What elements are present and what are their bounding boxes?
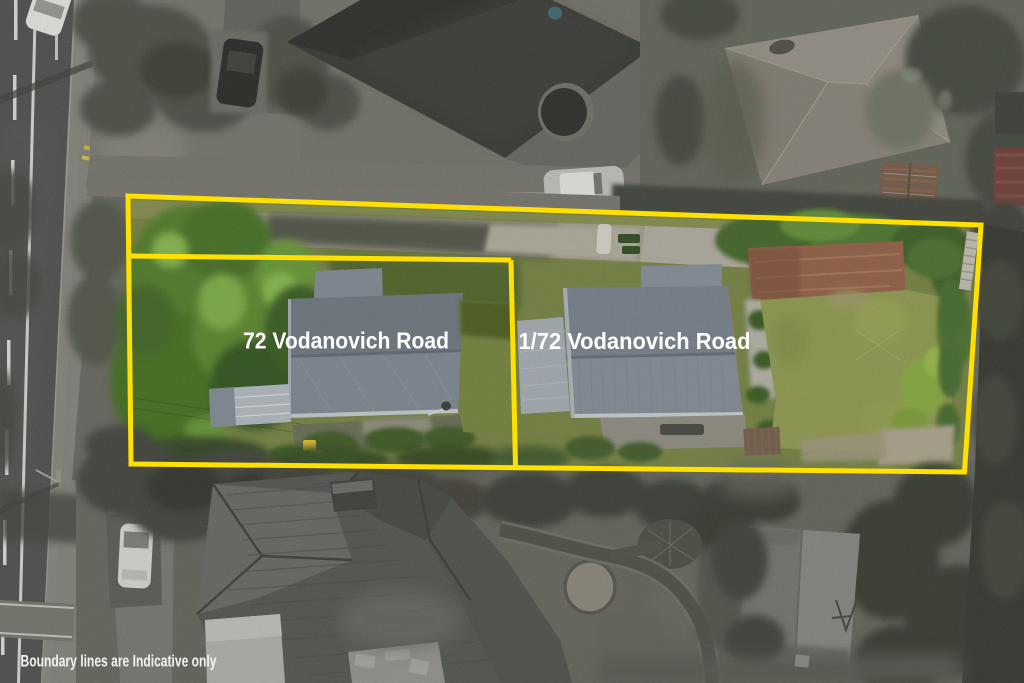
svg-text:Boundary lines are Indicative: Boundary lines are Indicative only [21,653,218,671]
svg-text:1/72 Vodanovich Road: 1/72 Vodanovich Road [519,328,751,354]
svg-text:72 Vodanovich Road: 72 Vodanovich Road [243,328,449,354]
